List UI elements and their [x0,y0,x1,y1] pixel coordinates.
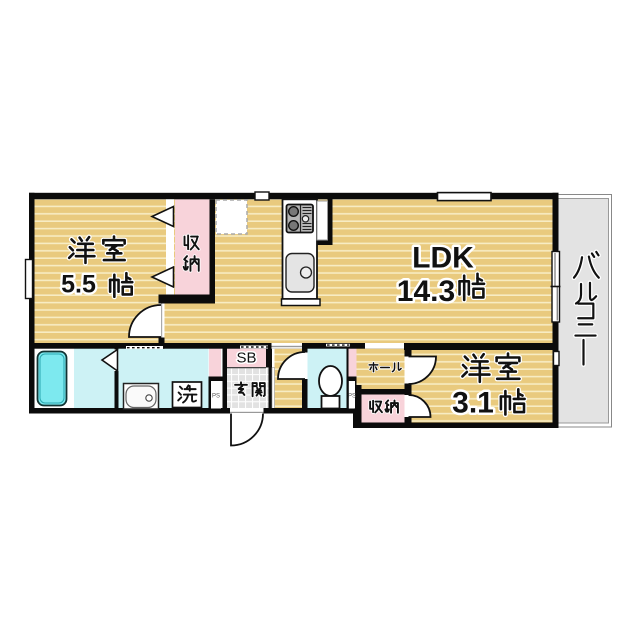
svg-text:LDK: LDK [412,242,474,275]
svg-text:5.5: 5.5 [61,271,96,299]
svg-text:PS: PS [212,394,220,400]
svg-text:PS: PS [348,394,356,400]
svg-text:3.1: 3.1 [452,387,494,420]
svg-text:SB: SB [236,350,256,367]
svg-text:14.3: 14.3 [397,275,455,308]
